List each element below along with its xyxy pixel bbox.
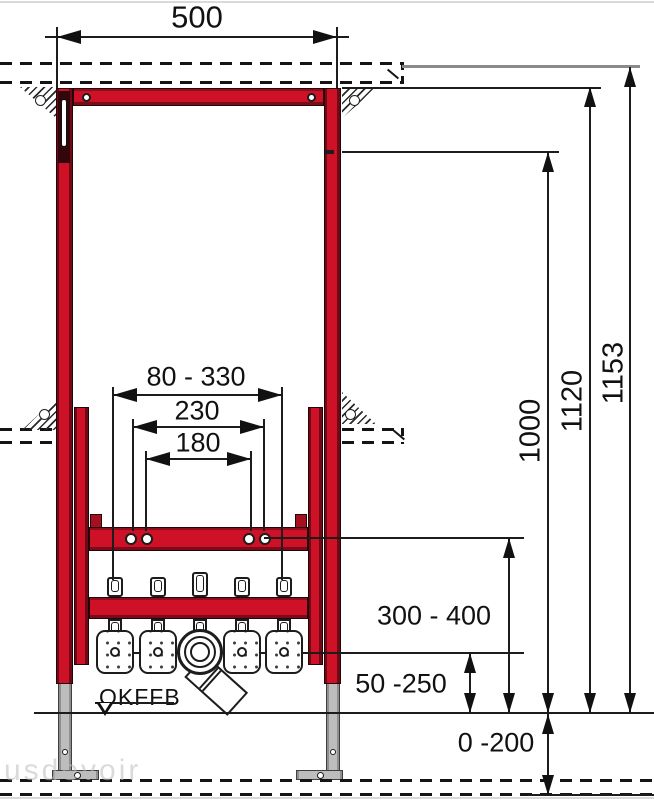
dim-arrow <box>464 693 476 713</box>
plate-center-hole-icon <box>237 647 247 657</box>
dim-label-1120: 1120 <box>559 370 588 432</box>
pipe-hanger <box>234 577 250 597</box>
waste-flange-inner-ring <box>190 642 210 662</box>
dim-arrow <box>624 67 636 87</box>
dim-arrow <box>542 693 554 713</box>
dim-label-1000: 1000 <box>517 399 546 464</box>
dim-arrow <box>503 693 515 713</box>
bracket-screw-icon <box>35 95 46 106</box>
plate-center-hole-icon <box>153 647 163 657</box>
dim-line-1000 <box>547 152 549 713</box>
fixing-bolt-icon <box>259 533 271 545</box>
dim-line-1120 <box>589 87 591 713</box>
ref-line-1120 <box>342 87 601 89</box>
foot-tube-right <box>326 682 340 772</box>
wall-rail-top-end-tick <box>387 69 399 80</box>
technical-drawing-canvas: OKFFB usdevoir 500 80 - 330 230 180 1153… <box>0 0 654 800</box>
dim-arrow <box>313 30 337 44</box>
wall-rail-mid-right-lower-dash <box>342 441 400 444</box>
frame-rail-right <box>324 88 341 684</box>
watermark-text: usdevoir <box>4 754 141 788</box>
extension-line <box>281 387 283 580</box>
dim-label-300-400: 300 - 400 <box>377 603 491 630</box>
inner-rail-left <box>74 407 89 665</box>
extension-line <box>56 27 58 88</box>
foot-pin-icon <box>330 749 336 755</box>
dim-label-500: 500 <box>171 2 223 33</box>
ref-line-outlet <box>264 537 524 539</box>
dim-label-50-250: 50 -250 <box>355 671 447 698</box>
fixing-bolt-icon <box>141 533 153 545</box>
crossbar-bolt-icon <box>82 93 91 102</box>
ref-line-1153 <box>402 65 640 68</box>
wall-rail-top-upper-dash <box>0 62 404 65</box>
canvas-border-top <box>0 1 654 3</box>
dim-arrow <box>227 452 251 466</box>
dim-line-500 <box>45 36 349 38</box>
wall-rail-top-lower-dash <box>0 81 404 84</box>
dim-label-0-200: 0 -200 <box>458 730 535 757</box>
fixing-tab <box>295 514 307 528</box>
dim-arrow <box>146 452 170 466</box>
ref-line-trap-axis <box>306 652 524 654</box>
foot-plate-screw-icon <box>317 772 324 779</box>
extension-line <box>145 451 147 531</box>
connection-crossbar <box>89 597 308 619</box>
dim-arrow <box>57 30 81 44</box>
rail-slot-window <box>61 99 67 147</box>
frame-rail-left <box>56 88 73 684</box>
dim-arrow <box>542 714 554 734</box>
floor-datum-label: OKFFB <box>99 684 181 711</box>
extension-line <box>336 27 338 88</box>
dim-line-300-400 <box>508 538 510 713</box>
pipe-hanger <box>276 577 292 597</box>
dim-arrow <box>503 538 515 558</box>
fixing-bolt-icon <box>125 533 137 545</box>
frame-top-crossbar <box>73 88 324 106</box>
wall-bracket-top-right <box>342 87 378 118</box>
crossbar-bolt-icon <box>307 93 316 102</box>
bracket-screw-icon <box>39 409 50 420</box>
rail-tick-1000 <box>325 150 334 154</box>
dim-arrow <box>113 388 137 402</box>
plate-center-hole-icon <box>110 647 120 657</box>
extension-line <box>132 419 134 531</box>
fixing-bolt-icon <box>243 533 255 545</box>
fixing-tab <box>90 514 102 528</box>
pipe-hanger <box>192 572 208 597</box>
dim-line-1153 <box>629 67 631 713</box>
dim-arrow <box>584 693 596 713</box>
dim-label-180: 180 <box>175 430 220 457</box>
dim-arrow <box>584 87 596 107</box>
fixing-crossbar <box>89 527 308 551</box>
dim-arrow <box>258 388 282 402</box>
bracket-screw-icon <box>345 409 356 420</box>
ref-line-1000 <box>342 151 559 153</box>
floor-line <box>34 712 654 714</box>
plate-center-hole-icon <box>279 647 289 657</box>
dim-arrow <box>542 152 554 172</box>
dim-arrow <box>133 420 157 434</box>
dim-arrow <box>542 775 554 795</box>
extension-line <box>112 387 114 580</box>
pipe-hanger <box>150 577 166 597</box>
wall-rail-mid-left-lower-dash <box>0 441 56 444</box>
extension-line <box>250 451 252 531</box>
canvas-border-bottom <box>0 797 654 799</box>
dim-arrow <box>464 653 476 673</box>
dim-arrow <box>624 693 636 713</box>
dim-label-80-330: 80 - 330 <box>146 364 245 391</box>
extension-line <box>263 419 265 531</box>
dim-arrow <box>240 420 264 434</box>
inner-rail-right <box>308 407 323 665</box>
dim-label-1153: 1153 <box>600 342 629 404</box>
dim-label-230: 230 <box>174 398 219 425</box>
bracket-screw-icon <box>349 95 360 106</box>
pipe-hanger <box>107 577 123 597</box>
